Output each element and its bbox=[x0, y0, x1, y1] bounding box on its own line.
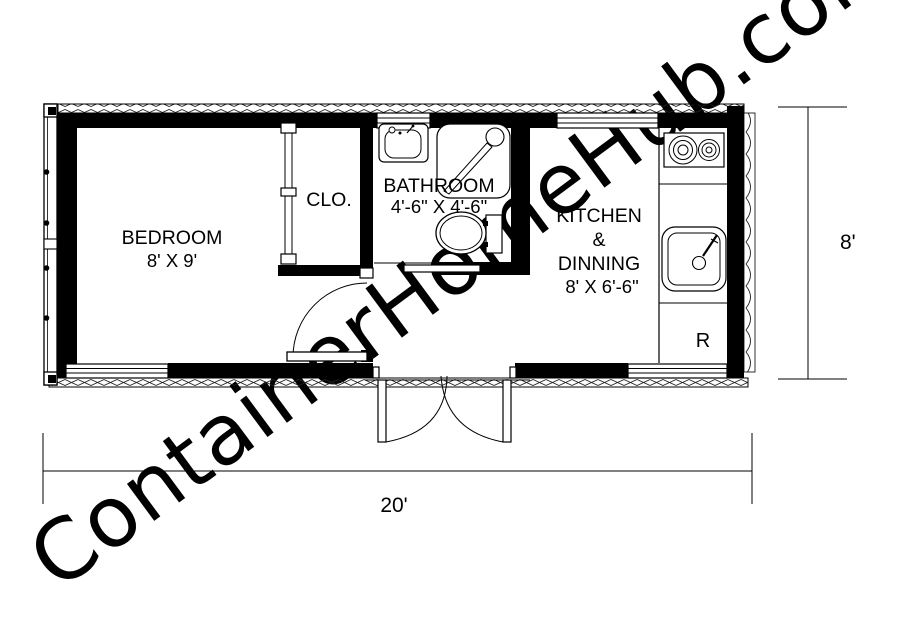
shower-drain-icon bbox=[486, 128, 504, 146]
door-leaf bbox=[287, 352, 367, 361]
door-leaf bbox=[378, 380, 386, 442]
wall-cap bbox=[360, 268, 373, 278]
corrugated-wall-right bbox=[744, 113, 755, 372]
window-frame bbox=[66, 364, 168, 378]
kitchen-sink bbox=[662, 227, 726, 291]
closet-bottom-wall bbox=[278, 265, 372, 276]
closet-door-cap bbox=[281, 123, 296, 133]
refrigerator-label: R bbox=[696, 330, 710, 352]
floor-plan-canvas: ContainerHomeHub.com bbox=[0, 0, 897, 628]
closet-door-cap bbox=[281, 188, 296, 196]
wall-segment bbox=[727, 106, 744, 378]
wall-segment bbox=[57, 113, 77, 365]
faucet-tip-dot bbox=[412, 125, 415, 128]
kitchen-label-line2: & bbox=[592, 229, 605, 251]
toilet-bowl-inner bbox=[440, 216, 482, 250]
corner-fitting-hole bbox=[48, 375, 56, 383]
wall-segment bbox=[168, 363, 373, 378]
door-leaf bbox=[503, 380, 511, 442]
window-frame bbox=[628, 364, 727, 378]
length-dimension-label: 20' bbox=[380, 494, 407, 517]
kitchen-label-line1: KITCHEN bbox=[556, 205, 642, 227]
burner-icon bbox=[706, 147, 712, 153]
bathroom-label: BATHROOM bbox=[383, 175, 494, 197]
drain-icon bbox=[693, 257, 706, 270]
toilet-bolt bbox=[483, 242, 488, 247]
hinge-icon bbox=[44, 315, 50, 321]
corrugated-wall-bottom bbox=[49, 378, 748, 387]
corrugation-band bbox=[744, 113, 755, 372]
width-dimension-label: 8' bbox=[840, 231, 856, 254]
corrugated-wall-top bbox=[58, 104, 744, 113]
bathroom-size: 4'-6" X 4'-6" bbox=[391, 196, 487, 217]
toilet-tank bbox=[486, 215, 502, 253]
corner-fitting-hole bbox=[48, 107, 56, 115]
hinge-icon bbox=[44, 220, 50, 226]
width-dimension bbox=[778, 107, 847, 379]
window-frame bbox=[557, 113, 658, 128]
corrugation-band bbox=[49, 378, 748, 387]
burner-icon bbox=[678, 145, 688, 155]
toilet-bolt bbox=[483, 221, 488, 226]
closet-doors bbox=[281, 123, 296, 264]
watermark-text: ContainerHomeHub.com bbox=[12, 0, 897, 608]
closet-door-cap bbox=[281, 254, 296, 264]
stove bbox=[664, 133, 724, 167]
corrugation-band bbox=[58, 104, 744, 113]
floor-plan-svg: ContainerHomeHub.com bbox=[0, 0, 897, 628]
kitchen-size: 8' X 6'-6" bbox=[565, 276, 638, 297]
wall-segment bbox=[58, 113, 377, 128]
closet-right-wall bbox=[360, 113, 373, 268]
hinge-icon bbox=[44, 265, 50, 271]
bathroom-right-wall bbox=[511, 113, 530, 275]
bedroom-label: BEDROOM bbox=[122, 227, 223, 249]
bedroom-window bbox=[66, 364, 168, 378]
door-lock-block bbox=[44, 239, 57, 249]
container-end-doors bbox=[44, 104, 57, 385]
bathroom-sink bbox=[379, 124, 428, 162]
bedroom-size: 8' X 9' bbox=[147, 250, 197, 271]
drain-dot bbox=[399, 132, 402, 135]
toilet bbox=[436, 212, 502, 254]
closet-label: CLO. bbox=[306, 189, 352, 211]
wall-cap bbox=[510, 367, 516, 378]
kitchen-window bbox=[557, 113, 658, 128]
sliding-door-leaf bbox=[404, 265, 480, 272]
kitchen-rear-window bbox=[628, 364, 727, 378]
wall-segment bbox=[515, 363, 628, 378]
kitchen-label-line3: DINNING bbox=[558, 253, 640, 275]
wall-cap bbox=[373, 367, 379, 378]
faucet-knob-icon bbox=[389, 127, 395, 133]
sink-bowl bbox=[385, 130, 421, 158]
hinge-icon bbox=[44, 169, 50, 175]
